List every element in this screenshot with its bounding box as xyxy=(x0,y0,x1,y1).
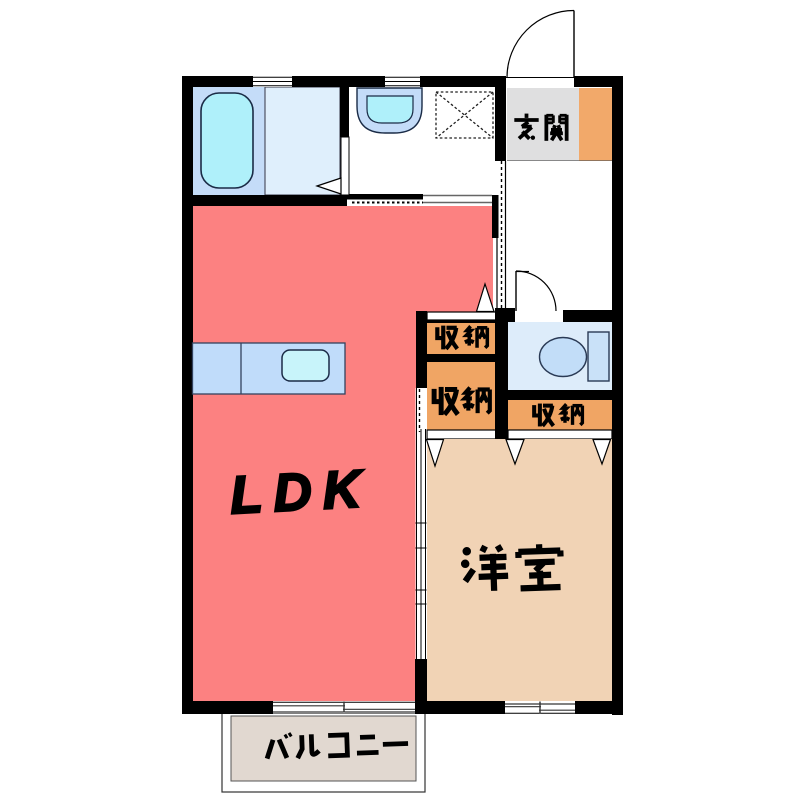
svg-text:LDK: LDK xyxy=(229,459,374,525)
